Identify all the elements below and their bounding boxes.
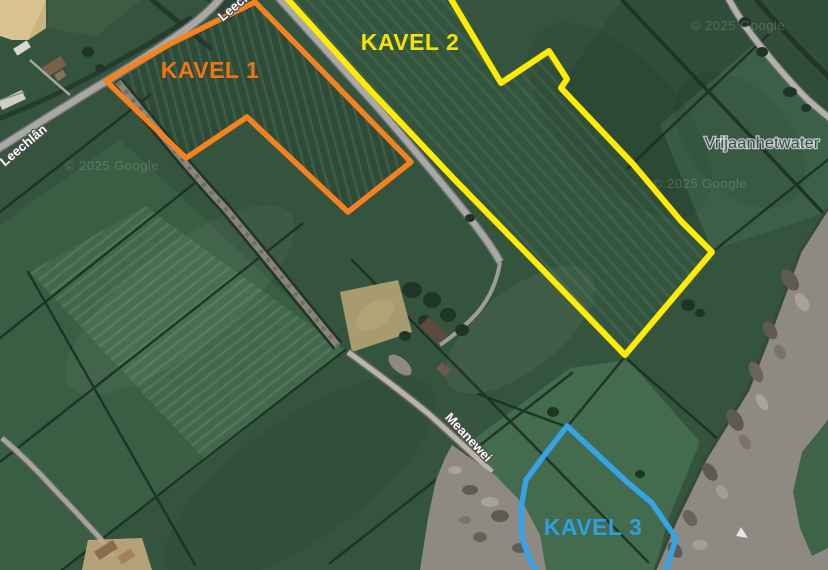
parcel-label-kavel-1: KAVEL 1 bbox=[161, 57, 260, 83]
mud-texture bbox=[692, 540, 708, 550]
tree bbox=[82, 47, 94, 57]
tree bbox=[547, 407, 559, 417]
tree bbox=[695, 309, 705, 317]
tree bbox=[440, 308, 456, 322]
mud-texture bbox=[462, 485, 478, 495]
parcel-label-kavel-3: KAVEL 3 bbox=[544, 514, 643, 540]
tree bbox=[783, 87, 797, 97]
mud-texture bbox=[448, 466, 462, 474]
tree bbox=[455, 324, 469, 336]
tree bbox=[402, 282, 422, 298]
parcel-label-kavel-2: KAVEL 2 bbox=[361, 29, 460, 55]
mud-texture bbox=[481, 497, 499, 507]
farm-yard bbox=[82, 538, 152, 570]
tree bbox=[95, 64, 105, 72]
tree bbox=[399, 331, 411, 341]
mud-texture bbox=[491, 510, 509, 522]
tree bbox=[801, 104, 811, 112]
mud-texture bbox=[459, 516, 471, 524]
tree bbox=[465, 214, 475, 222]
tree bbox=[681, 299, 695, 311]
satellite-map-viewport[interactable]: KAVEL 1 KAVEL 2 KAVEL 3 Leechlân Leechlâ… bbox=[0, 0, 828, 570]
satellite-map-canvas[interactable]: KAVEL 1 KAVEL 2 KAVEL 3 Leechlân Leechlâ… bbox=[0, 0, 828, 570]
mud-texture bbox=[473, 532, 487, 542]
farm-bottomleft bbox=[82, 538, 152, 570]
tree bbox=[756, 47, 768, 57]
google-attribution-watermark: © 2025 Google bbox=[65, 158, 159, 173]
google-attribution-watermark: © 2025 Google bbox=[653, 176, 747, 191]
place-label-vrijaanhetwater: Vrijaanhetwater bbox=[704, 135, 819, 152]
google-attribution-watermark: © 2025 Google bbox=[691, 18, 785, 33]
tree bbox=[423, 292, 441, 308]
tree bbox=[635, 470, 645, 478]
